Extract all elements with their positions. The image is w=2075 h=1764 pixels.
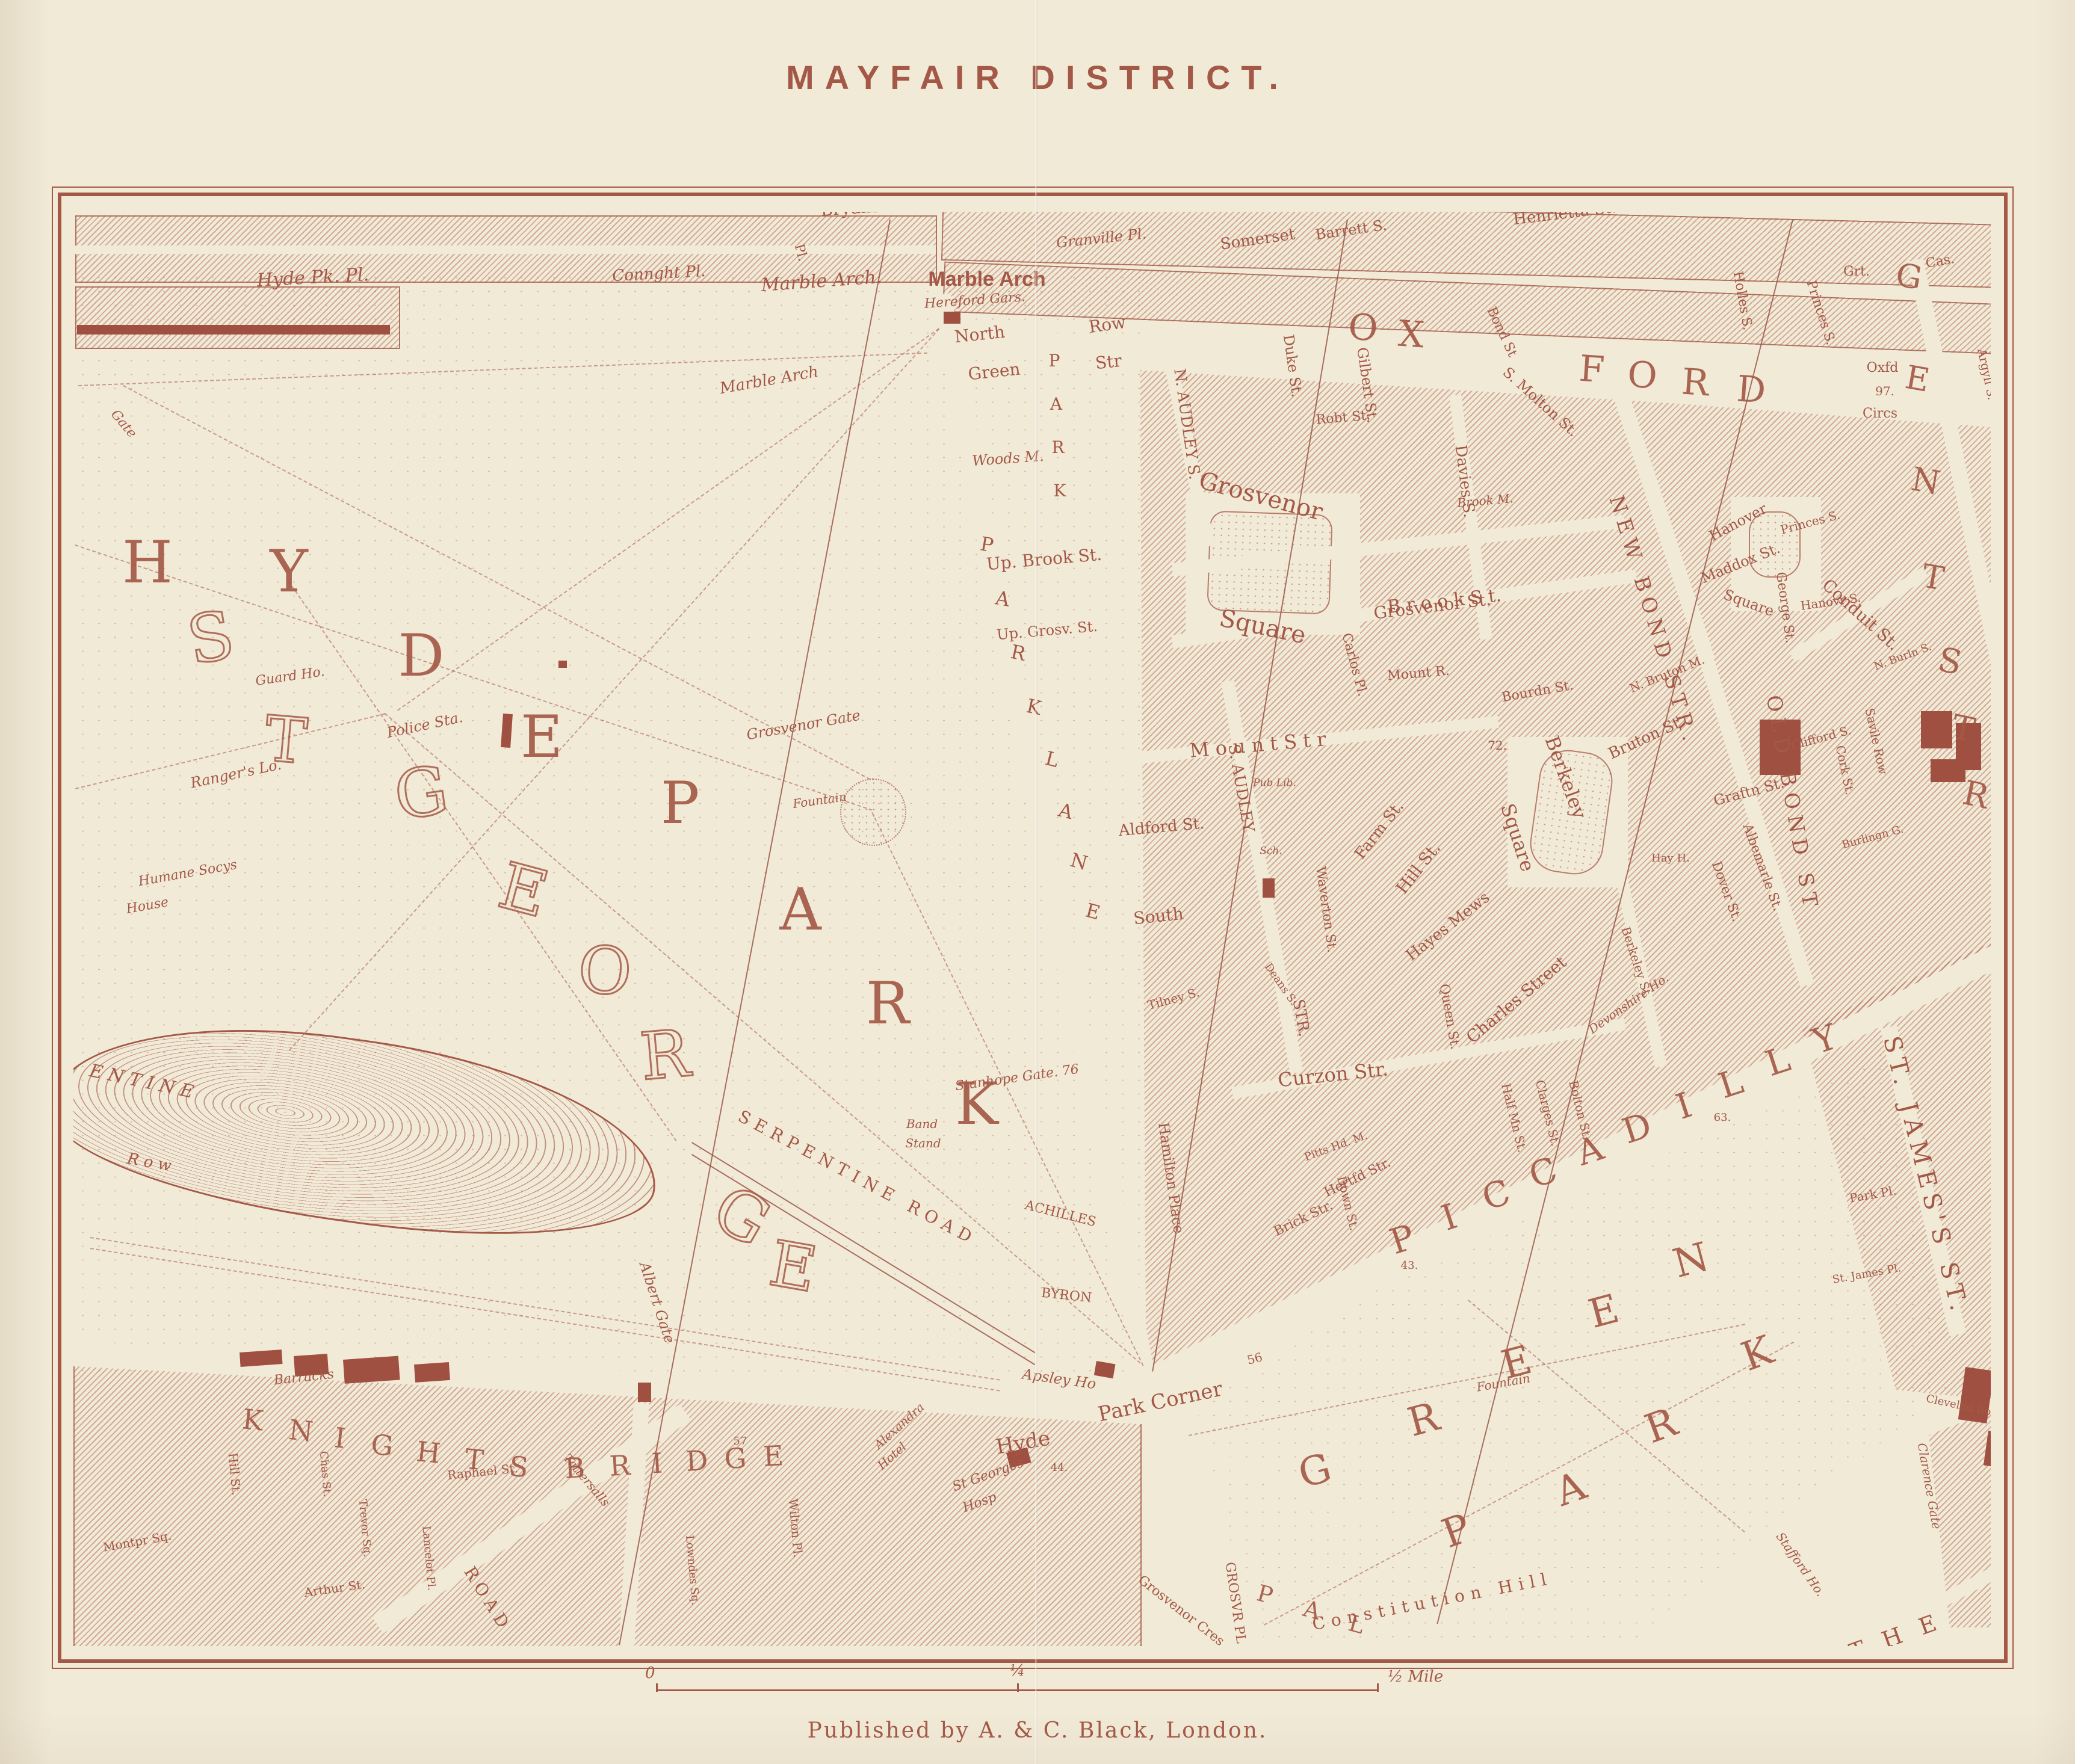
publisher-imprint: Published by A. & C. Black, London. <box>0 1718 2075 1743</box>
scale-half-mile: ½ Mile <box>1388 1668 1443 1686</box>
map-title: MAYFAIR DISTRICT. <box>0 58 2075 97</box>
map-page: MAYFAIR DISTRICT. <box>0 0 2075 1764</box>
paper-fold-line <box>1035 0 1037 1764</box>
map-frame <box>52 187 2014 1669</box>
